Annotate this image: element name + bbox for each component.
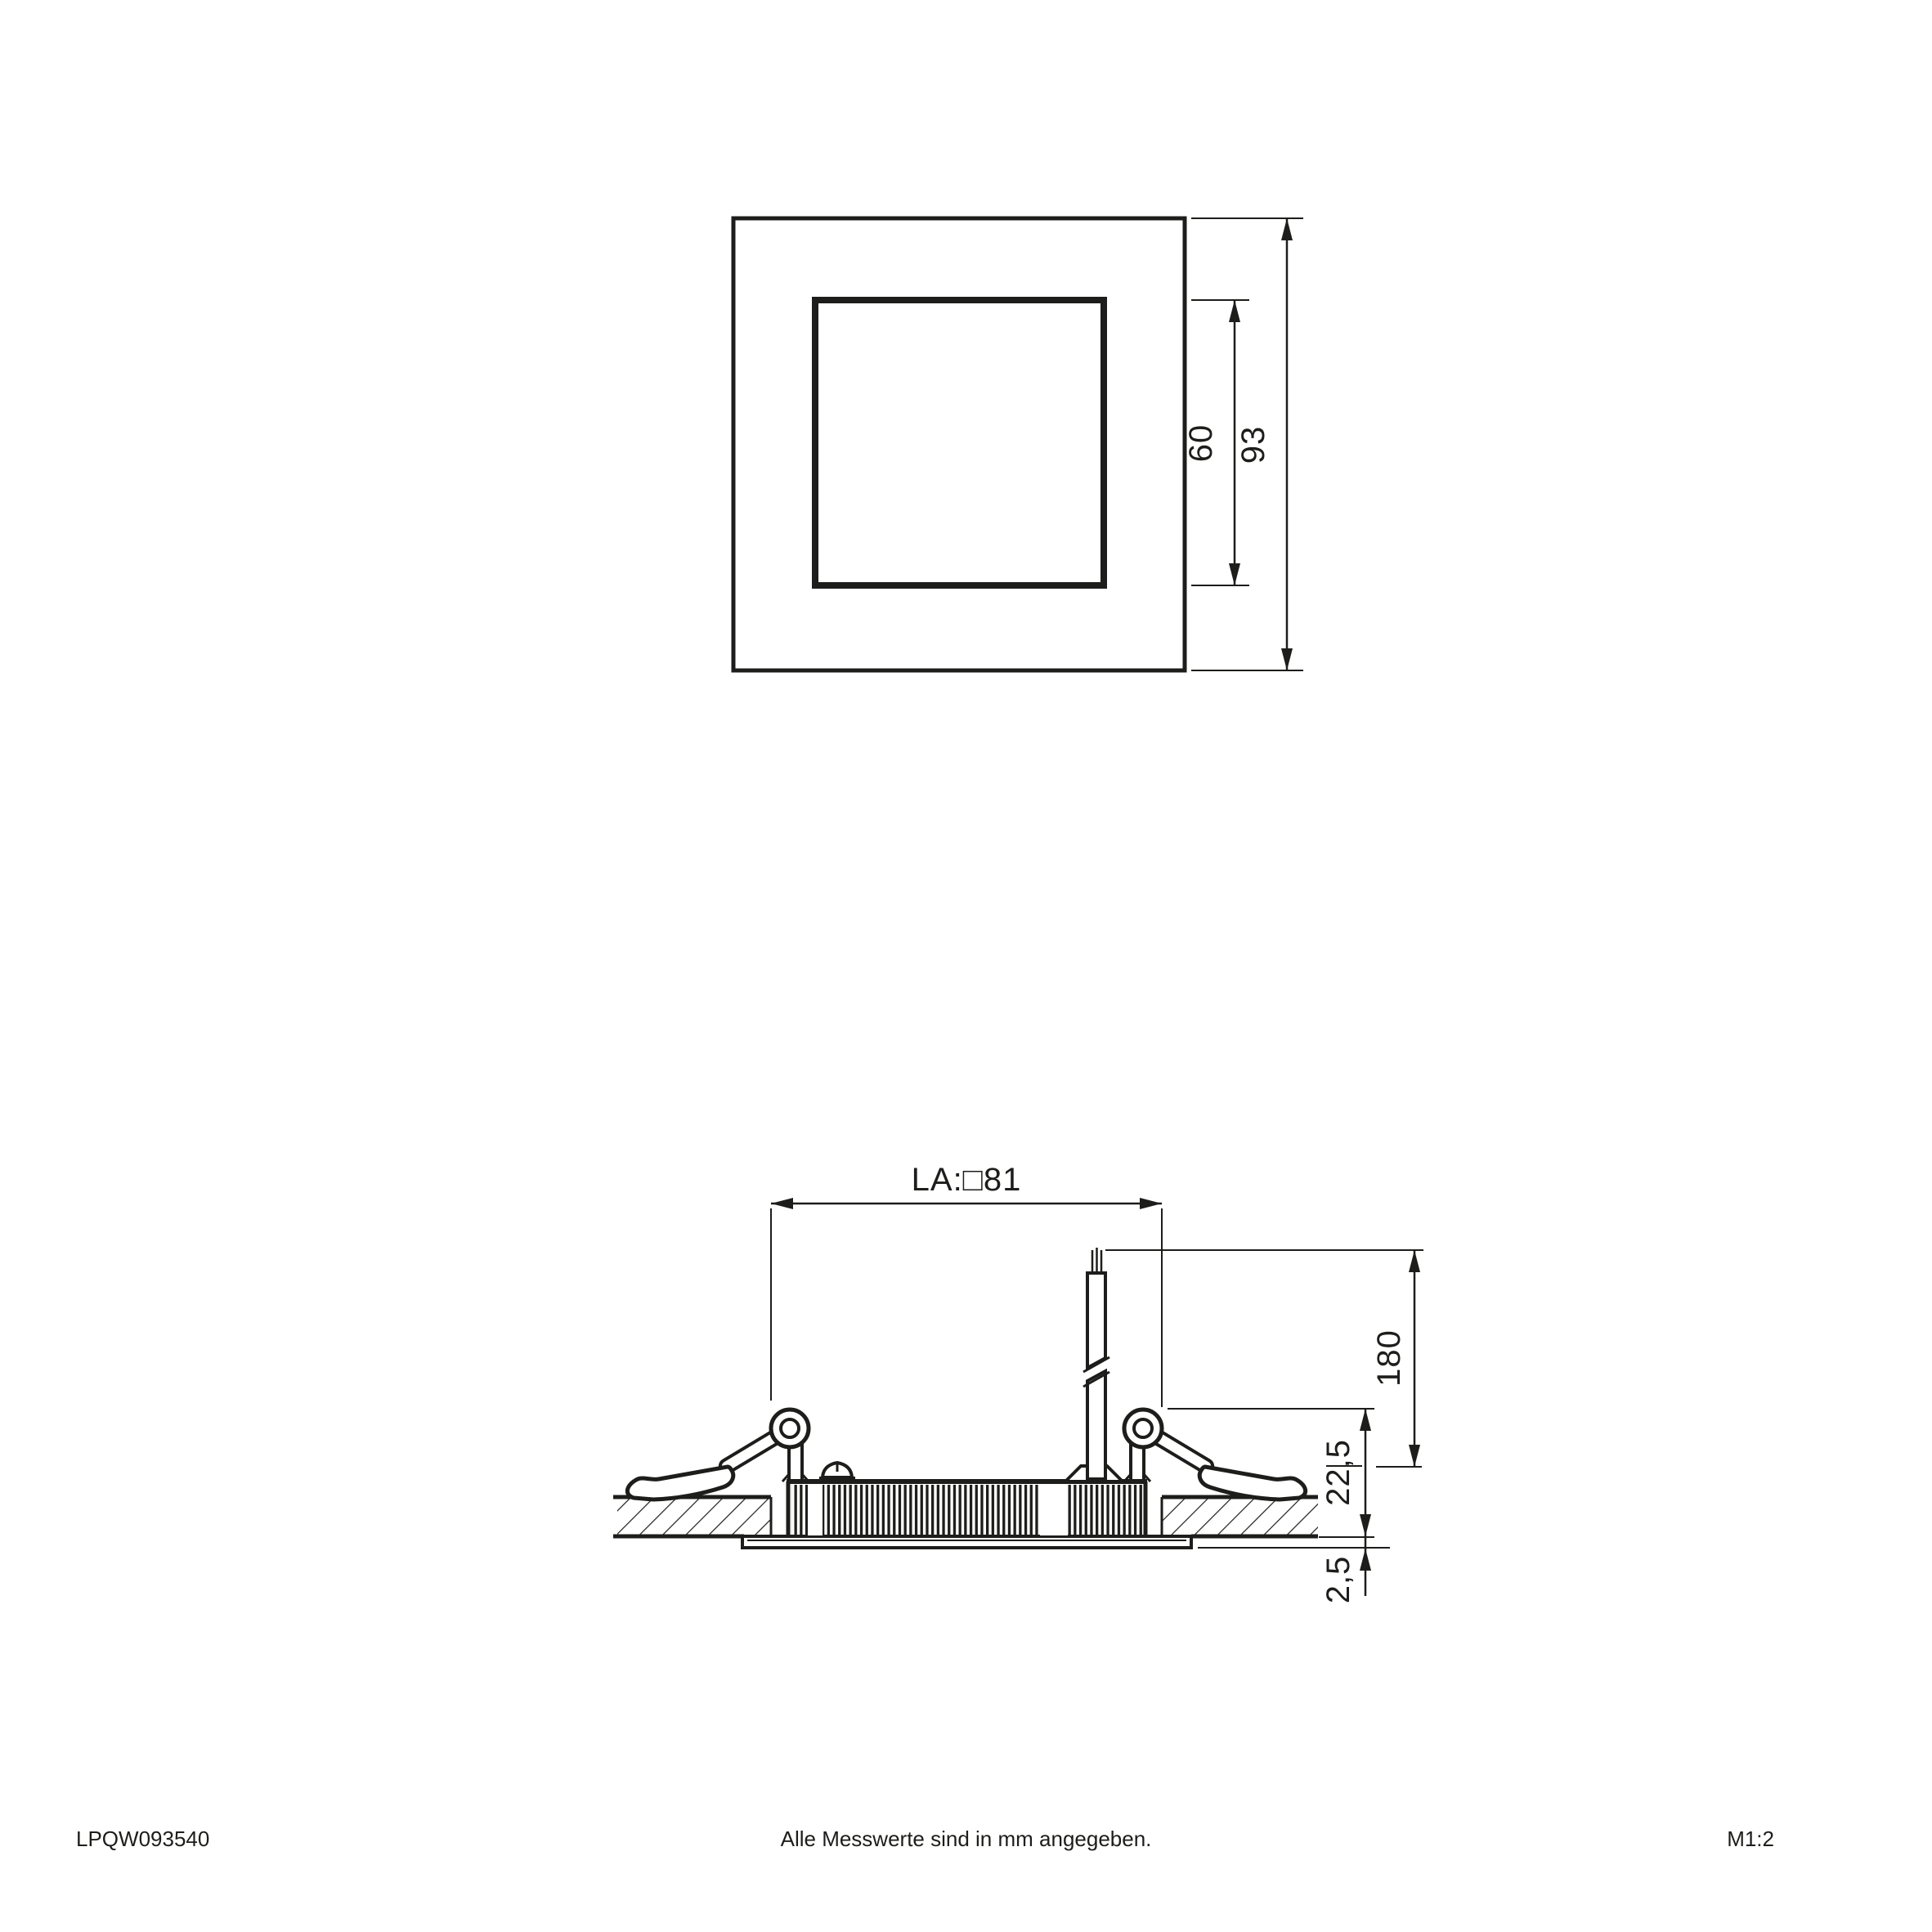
trim-flange xyxy=(742,1536,1191,1548)
dimension-label-inner: 60 xyxy=(1183,424,1219,463)
arrowhead-left xyxy=(771,1198,793,1209)
dimension-label-outer: 93 xyxy=(1235,426,1271,464)
ceiling-section-left xyxy=(613,1497,771,1536)
dimension-60: 60 xyxy=(1183,300,1240,585)
left-clip xyxy=(627,1410,809,1499)
fin-gap xyxy=(808,1483,823,1535)
arrowhead-up xyxy=(1229,300,1240,322)
arrowhead-up xyxy=(1409,1250,1420,1272)
arrowhead-down xyxy=(1409,1445,1420,1467)
dimension-93: 93 xyxy=(1235,218,1293,670)
arrowhead-down xyxy=(1281,648,1293,670)
cable-lower-segment xyxy=(1087,1371,1105,1479)
arrowhead-up xyxy=(1360,1549,1371,1571)
arrowhead-down xyxy=(1360,1514,1371,1536)
arrowhead-up xyxy=(1281,218,1293,240)
dimension-label-depth: 22,5 xyxy=(1320,1439,1356,1506)
fin-gap xyxy=(1040,1483,1068,1535)
dimension-trim-height: 2,5 xyxy=(1198,1536,1390,1603)
arrowhead-up xyxy=(1360,1409,1371,1431)
right-clip xyxy=(1124,1410,1306,1499)
drawing-page: 60 93 xyxy=(0,0,1932,1932)
dimension-label-cutout: LA:□81 xyxy=(912,1162,1022,1198)
arrowhead-right xyxy=(1140,1198,1162,1209)
side-view: LA:□81 180 22,5 2,5 xyxy=(613,1162,1423,1603)
ceiling-hatch xyxy=(617,1499,771,1535)
heatsink-fins xyxy=(791,1485,1142,1535)
technical-drawing: 60 93 xyxy=(0,0,1932,1932)
drawing-scale: M1:2 xyxy=(1727,1827,1774,1852)
top-view: 60 93 xyxy=(733,218,1303,670)
dimension-label-cable: 180 xyxy=(1371,1329,1407,1387)
flange-outline xyxy=(742,1536,1191,1548)
cable-upper-segment xyxy=(1087,1273,1105,1368)
ceiling-section-right xyxy=(1162,1497,1318,1536)
panel-light-aperture xyxy=(815,300,1104,585)
connection-cable xyxy=(1083,1248,1109,1479)
dimension-label-trim: 2,5 xyxy=(1320,1556,1356,1604)
units-note: Alle Messwerte sind in mm angegeben. xyxy=(0,1827,1932,1852)
arrowhead-down xyxy=(1229,563,1240,585)
fixing-screw xyxy=(819,1463,855,1481)
ceiling-hatch xyxy=(1162,1499,1318,1535)
